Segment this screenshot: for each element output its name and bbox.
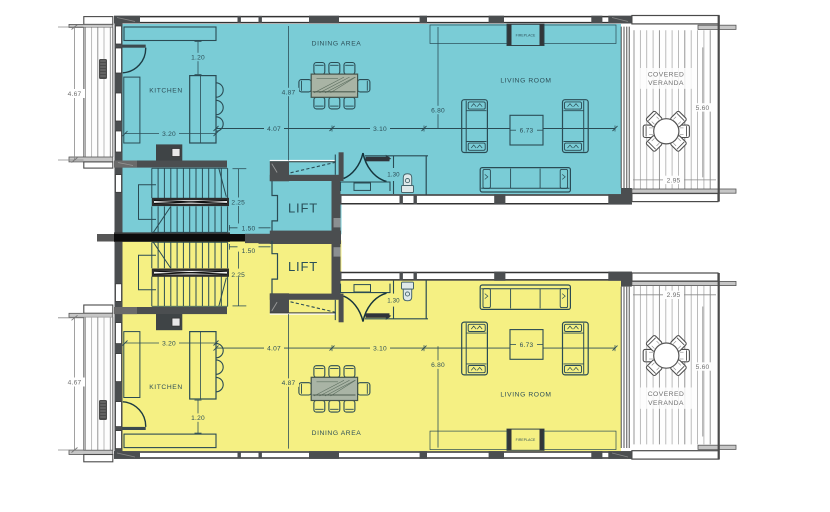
svg-text:4.07: 4.07 bbox=[267, 346, 281, 353]
svg-text:VERANDA: VERANDA bbox=[648, 80, 684, 87]
svg-text:1.50: 1.50 bbox=[242, 248, 256, 255]
svg-text:3.20: 3.20 bbox=[162, 340, 176, 347]
svg-text:KITCHEN: KITCHEN bbox=[149, 384, 183, 391]
svg-text:LIFT: LIFT bbox=[288, 201, 318, 216]
svg-text:FIREPLACE: FIREPLACE bbox=[516, 33, 536, 37]
svg-text:3.10: 3.10 bbox=[373, 346, 387, 353]
svg-text:4.67: 4.67 bbox=[68, 91, 82, 98]
svg-text:5.60: 5.60 bbox=[696, 364, 710, 371]
svg-text:6.80: 6.80 bbox=[431, 107, 445, 114]
svg-text:DINING AREA: DINING AREA bbox=[312, 430, 362, 437]
svg-text:1.30: 1.30 bbox=[387, 172, 400, 179]
svg-text:FIREPLACE: FIREPLACE bbox=[516, 438, 536, 442]
svg-text:6.73: 6.73 bbox=[520, 342, 534, 349]
svg-text:5.60: 5.60 bbox=[696, 105, 710, 112]
svg-text:4.87: 4.87 bbox=[282, 89, 296, 96]
svg-text:VERANDA: VERANDA bbox=[648, 400, 684, 407]
svg-text:4.87: 4.87 bbox=[282, 380, 296, 387]
svg-text:1.20: 1.20 bbox=[191, 54, 205, 61]
svg-text:1.20: 1.20 bbox=[191, 415, 205, 422]
svg-text:6.73: 6.73 bbox=[520, 128, 534, 135]
svg-text:2.25: 2.25 bbox=[231, 199, 245, 206]
svg-text:LIVING ROOM: LIVING ROOM bbox=[500, 77, 551, 84]
svg-text:6.80: 6.80 bbox=[431, 362, 445, 369]
svg-text:COVERED: COVERED bbox=[648, 71, 685, 78]
svg-text:COVERED: COVERED bbox=[648, 391, 685, 398]
svg-text:2.95: 2.95 bbox=[667, 292, 681, 299]
svg-text:KITCHEN: KITCHEN bbox=[149, 87, 183, 94]
svg-text:DINING AREA: DINING AREA bbox=[312, 40, 362, 47]
svg-text:LIVING ROOM: LIVING ROOM bbox=[500, 392, 551, 399]
svg-text:LIFT: LIFT bbox=[288, 259, 318, 274]
svg-text:3.10: 3.10 bbox=[373, 126, 387, 133]
svg-text:1.30: 1.30 bbox=[387, 297, 400, 304]
svg-text:2.25: 2.25 bbox=[231, 272, 245, 279]
svg-text:2.95: 2.95 bbox=[667, 177, 681, 184]
svg-text:4.67: 4.67 bbox=[68, 379, 82, 386]
svg-text:3.20: 3.20 bbox=[162, 131, 176, 138]
svg-text:4.07: 4.07 bbox=[267, 126, 281, 133]
svg-text:1.50: 1.50 bbox=[242, 225, 256, 232]
